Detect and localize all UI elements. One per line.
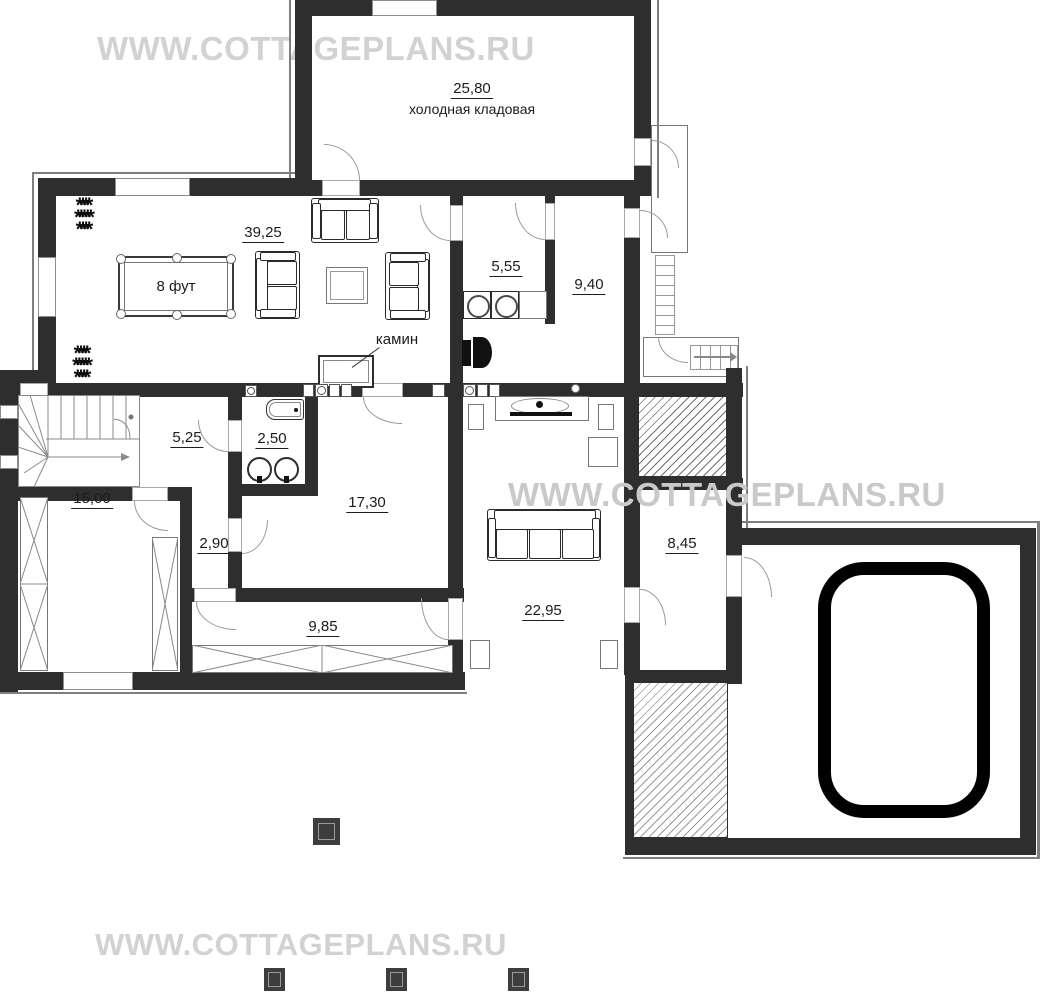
door-opening bbox=[624, 208, 640, 238]
window bbox=[38, 257, 56, 317]
door-arc bbox=[515, 203, 545, 240]
pocket bbox=[172, 310, 182, 320]
room-area: 9,85 bbox=[306, 618, 339, 637]
pocket bbox=[116, 254, 126, 264]
sink bbox=[247, 457, 272, 482]
sofa-cushion bbox=[346, 210, 370, 240]
sofa-cushion bbox=[267, 286, 297, 310]
wall-segment bbox=[625, 838, 1036, 855]
hearth-block bbox=[432, 384, 445, 397]
exterior-stair-flight bbox=[655, 255, 675, 335]
pocket bbox=[172, 253, 182, 263]
hearth-block bbox=[245, 385, 257, 397]
door-opening bbox=[545, 203, 555, 240]
wardrobe bbox=[152, 537, 178, 671]
column-marker bbox=[313, 818, 340, 845]
outline bbox=[657, 0, 659, 198]
counter bbox=[519, 291, 547, 319]
room-area: 9,40 bbox=[572, 276, 605, 295]
speaker bbox=[600, 640, 618, 669]
door-arc bbox=[421, 598, 448, 640]
stair-arrow-line bbox=[694, 356, 730, 358]
wall-segment bbox=[305, 396, 318, 488]
wardrobe bbox=[192, 645, 453, 673]
hearth-block bbox=[341, 384, 352, 397]
room-area: 15,00 bbox=[71, 490, 113, 509]
pool-table-label: 8 фут bbox=[156, 278, 195, 295]
side-table bbox=[588, 437, 618, 467]
door-opening bbox=[132, 487, 168, 501]
sink-faucet bbox=[257, 476, 262, 483]
tv-screen bbox=[510, 412, 572, 416]
sofa-cushion bbox=[529, 529, 561, 559]
room-label-billiard: 39,25 bbox=[242, 224, 284, 243]
wall-segment bbox=[726, 368, 742, 675]
door-opening bbox=[228, 420, 242, 452]
watermark-bottom: WWW.COTTAGEPLANS.RU bbox=[95, 927, 507, 963]
room-area: 22,95 bbox=[522, 602, 564, 621]
wall-segment bbox=[228, 484, 318, 496]
hearth-block bbox=[477, 384, 488, 397]
window bbox=[0, 455, 18, 469]
door-arc bbox=[744, 557, 772, 597]
coffee-table-inner bbox=[330, 271, 364, 300]
room-label-corridor: 9,85 bbox=[306, 618, 339, 637]
hearth-block bbox=[329, 384, 340, 397]
sofa-cushion bbox=[562, 529, 594, 559]
sofa-arm bbox=[260, 309, 296, 318]
pocket bbox=[226, 254, 236, 264]
room-label-cold-storage: 25,80 холодная кладовая bbox=[409, 80, 535, 117]
washing-machine bbox=[491, 291, 519, 319]
sofa bbox=[311, 198, 379, 243]
swimming-pool bbox=[818, 562, 990, 818]
column-marker bbox=[264, 968, 285, 991]
wall-segment bbox=[634, 0, 651, 196]
door-opening bbox=[448, 598, 463, 640]
room-label-sauna-hall: 8,45 bbox=[665, 535, 698, 554]
hearth-block bbox=[463, 384, 476, 397]
interior-stairs bbox=[18, 395, 140, 487]
outline bbox=[32, 172, 34, 386]
outline bbox=[0, 692, 467, 694]
wall-segment bbox=[180, 487, 192, 677]
sofa-cushion bbox=[321, 210, 345, 240]
door-opening bbox=[624, 587, 640, 623]
sofa bbox=[385, 252, 430, 320]
room-area: 8,45 bbox=[665, 535, 698, 554]
floor-plan: WWW.COTTAGEPLANS.RU WWW.COTTAGEPLANS.RU … bbox=[0, 0, 1040, 995]
room-label-lounge: 17,30 bbox=[346, 494, 388, 513]
outline bbox=[623, 857, 1040, 859]
sofa-cushion bbox=[389, 262, 419, 286]
room-label-hall-left: 5,25 bbox=[170, 429, 203, 448]
wall-segment bbox=[295, 0, 312, 194]
room-area: 2,50 bbox=[255, 430, 288, 449]
speaker bbox=[470, 640, 490, 669]
room-area: 2,90 bbox=[197, 535, 230, 554]
speaker bbox=[598, 404, 614, 430]
sofa-cushion bbox=[389, 287, 419, 311]
sofa-arm bbox=[260, 252, 296, 261]
hearth-block bbox=[315, 384, 328, 397]
room-name: холодная кладовая bbox=[409, 101, 535, 117]
wardrobe bbox=[20, 497, 48, 671]
door-arc bbox=[196, 602, 236, 630]
room-area: 25,80 bbox=[451, 80, 493, 99]
wall-segment bbox=[295, 0, 651, 16]
washer-drum bbox=[467, 295, 490, 318]
door-opening bbox=[450, 205, 463, 241]
outline bbox=[289, 0, 291, 180]
door-opening bbox=[194, 588, 236, 602]
sofa-arm bbox=[390, 253, 426, 262]
room-area: 39,25 bbox=[242, 224, 284, 243]
sofa-large bbox=[487, 509, 601, 561]
billiard-table: 8 фут bbox=[118, 256, 234, 317]
window bbox=[63, 672, 133, 690]
door-opening bbox=[322, 180, 360, 196]
toilet-bowl bbox=[473, 337, 492, 368]
hatched-shaft bbox=[637, 395, 728, 478]
hearth-blocks bbox=[303, 384, 353, 397]
window bbox=[0, 405, 18, 419]
hatched-terrace bbox=[633, 682, 728, 838]
sofa-arm bbox=[369, 203, 378, 239]
window bbox=[372, 0, 437, 16]
outline bbox=[738, 521, 1038, 523]
watermark-top: WWW.COTTAGEPLANS.RU bbox=[97, 30, 535, 68]
room-label-laundry: 5,55 bbox=[489, 258, 522, 277]
tv-dot bbox=[536, 401, 543, 408]
plant: ************* bbox=[56, 348, 104, 384]
hearth-blocks bbox=[432, 384, 446, 397]
bathtub-faucet bbox=[294, 408, 298, 412]
pocket bbox=[116, 309, 126, 319]
window bbox=[115, 178, 190, 196]
sofa-arm bbox=[390, 310, 426, 319]
sofa-arm bbox=[488, 518, 496, 558]
wall-marker-circle bbox=[571, 384, 580, 393]
sofa-arm bbox=[312, 203, 321, 239]
room-area: 5,55 bbox=[489, 258, 522, 277]
sofa bbox=[255, 251, 300, 319]
column-marker bbox=[508, 968, 529, 991]
room-label-small-corridor: 2,90 bbox=[197, 535, 230, 554]
door-arc bbox=[420, 205, 450, 241]
door-opening bbox=[726, 555, 742, 597]
door-arc bbox=[363, 397, 402, 424]
door-arc bbox=[242, 520, 268, 554]
washer-drum bbox=[495, 295, 518, 318]
door-opening bbox=[634, 138, 651, 166]
fireplace-inner bbox=[323, 360, 369, 383]
watermark-middle: WWW.COTTAGEPLANS.RU bbox=[508, 476, 946, 514]
sofa-cushion bbox=[267, 261, 297, 285]
plant: ************* bbox=[58, 200, 106, 236]
column-marker bbox=[386, 968, 407, 991]
door-arc bbox=[640, 589, 666, 625]
hearth-blocks bbox=[245, 385, 258, 397]
coffee-table bbox=[326, 267, 368, 304]
sink bbox=[274, 457, 299, 482]
outline bbox=[32, 172, 296, 174]
room-label-hall-right: 9,40 bbox=[572, 276, 605, 295]
hearth-block bbox=[303, 384, 314, 397]
tv-console bbox=[495, 396, 589, 421]
stair-arrow-head bbox=[730, 352, 737, 362]
washing-machine bbox=[463, 291, 491, 319]
pocket bbox=[226, 309, 236, 319]
room-label-storage: 15,00 bbox=[71, 490, 113, 509]
door-arc bbox=[324, 144, 360, 180]
wall-segment bbox=[0, 386, 18, 692]
door-arc bbox=[134, 501, 168, 531]
fireplace-label: камин bbox=[376, 331, 418, 348]
toilet-tank bbox=[462, 340, 471, 366]
room-area: 17,30 bbox=[346, 494, 388, 513]
room-label-bathroom: 2,50 bbox=[255, 430, 288, 449]
room-area: 5,25 bbox=[170, 429, 203, 448]
sink-faucet bbox=[284, 476, 289, 483]
sofa-cushion bbox=[496, 529, 528, 559]
room-label-cinema: 22,95 bbox=[522, 602, 564, 621]
speaker bbox=[468, 404, 484, 430]
bathtub bbox=[266, 399, 304, 420]
wall-segment bbox=[1020, 528, 1036, 855]
wall-segment bbox=[738, 528, 1036, 545]
